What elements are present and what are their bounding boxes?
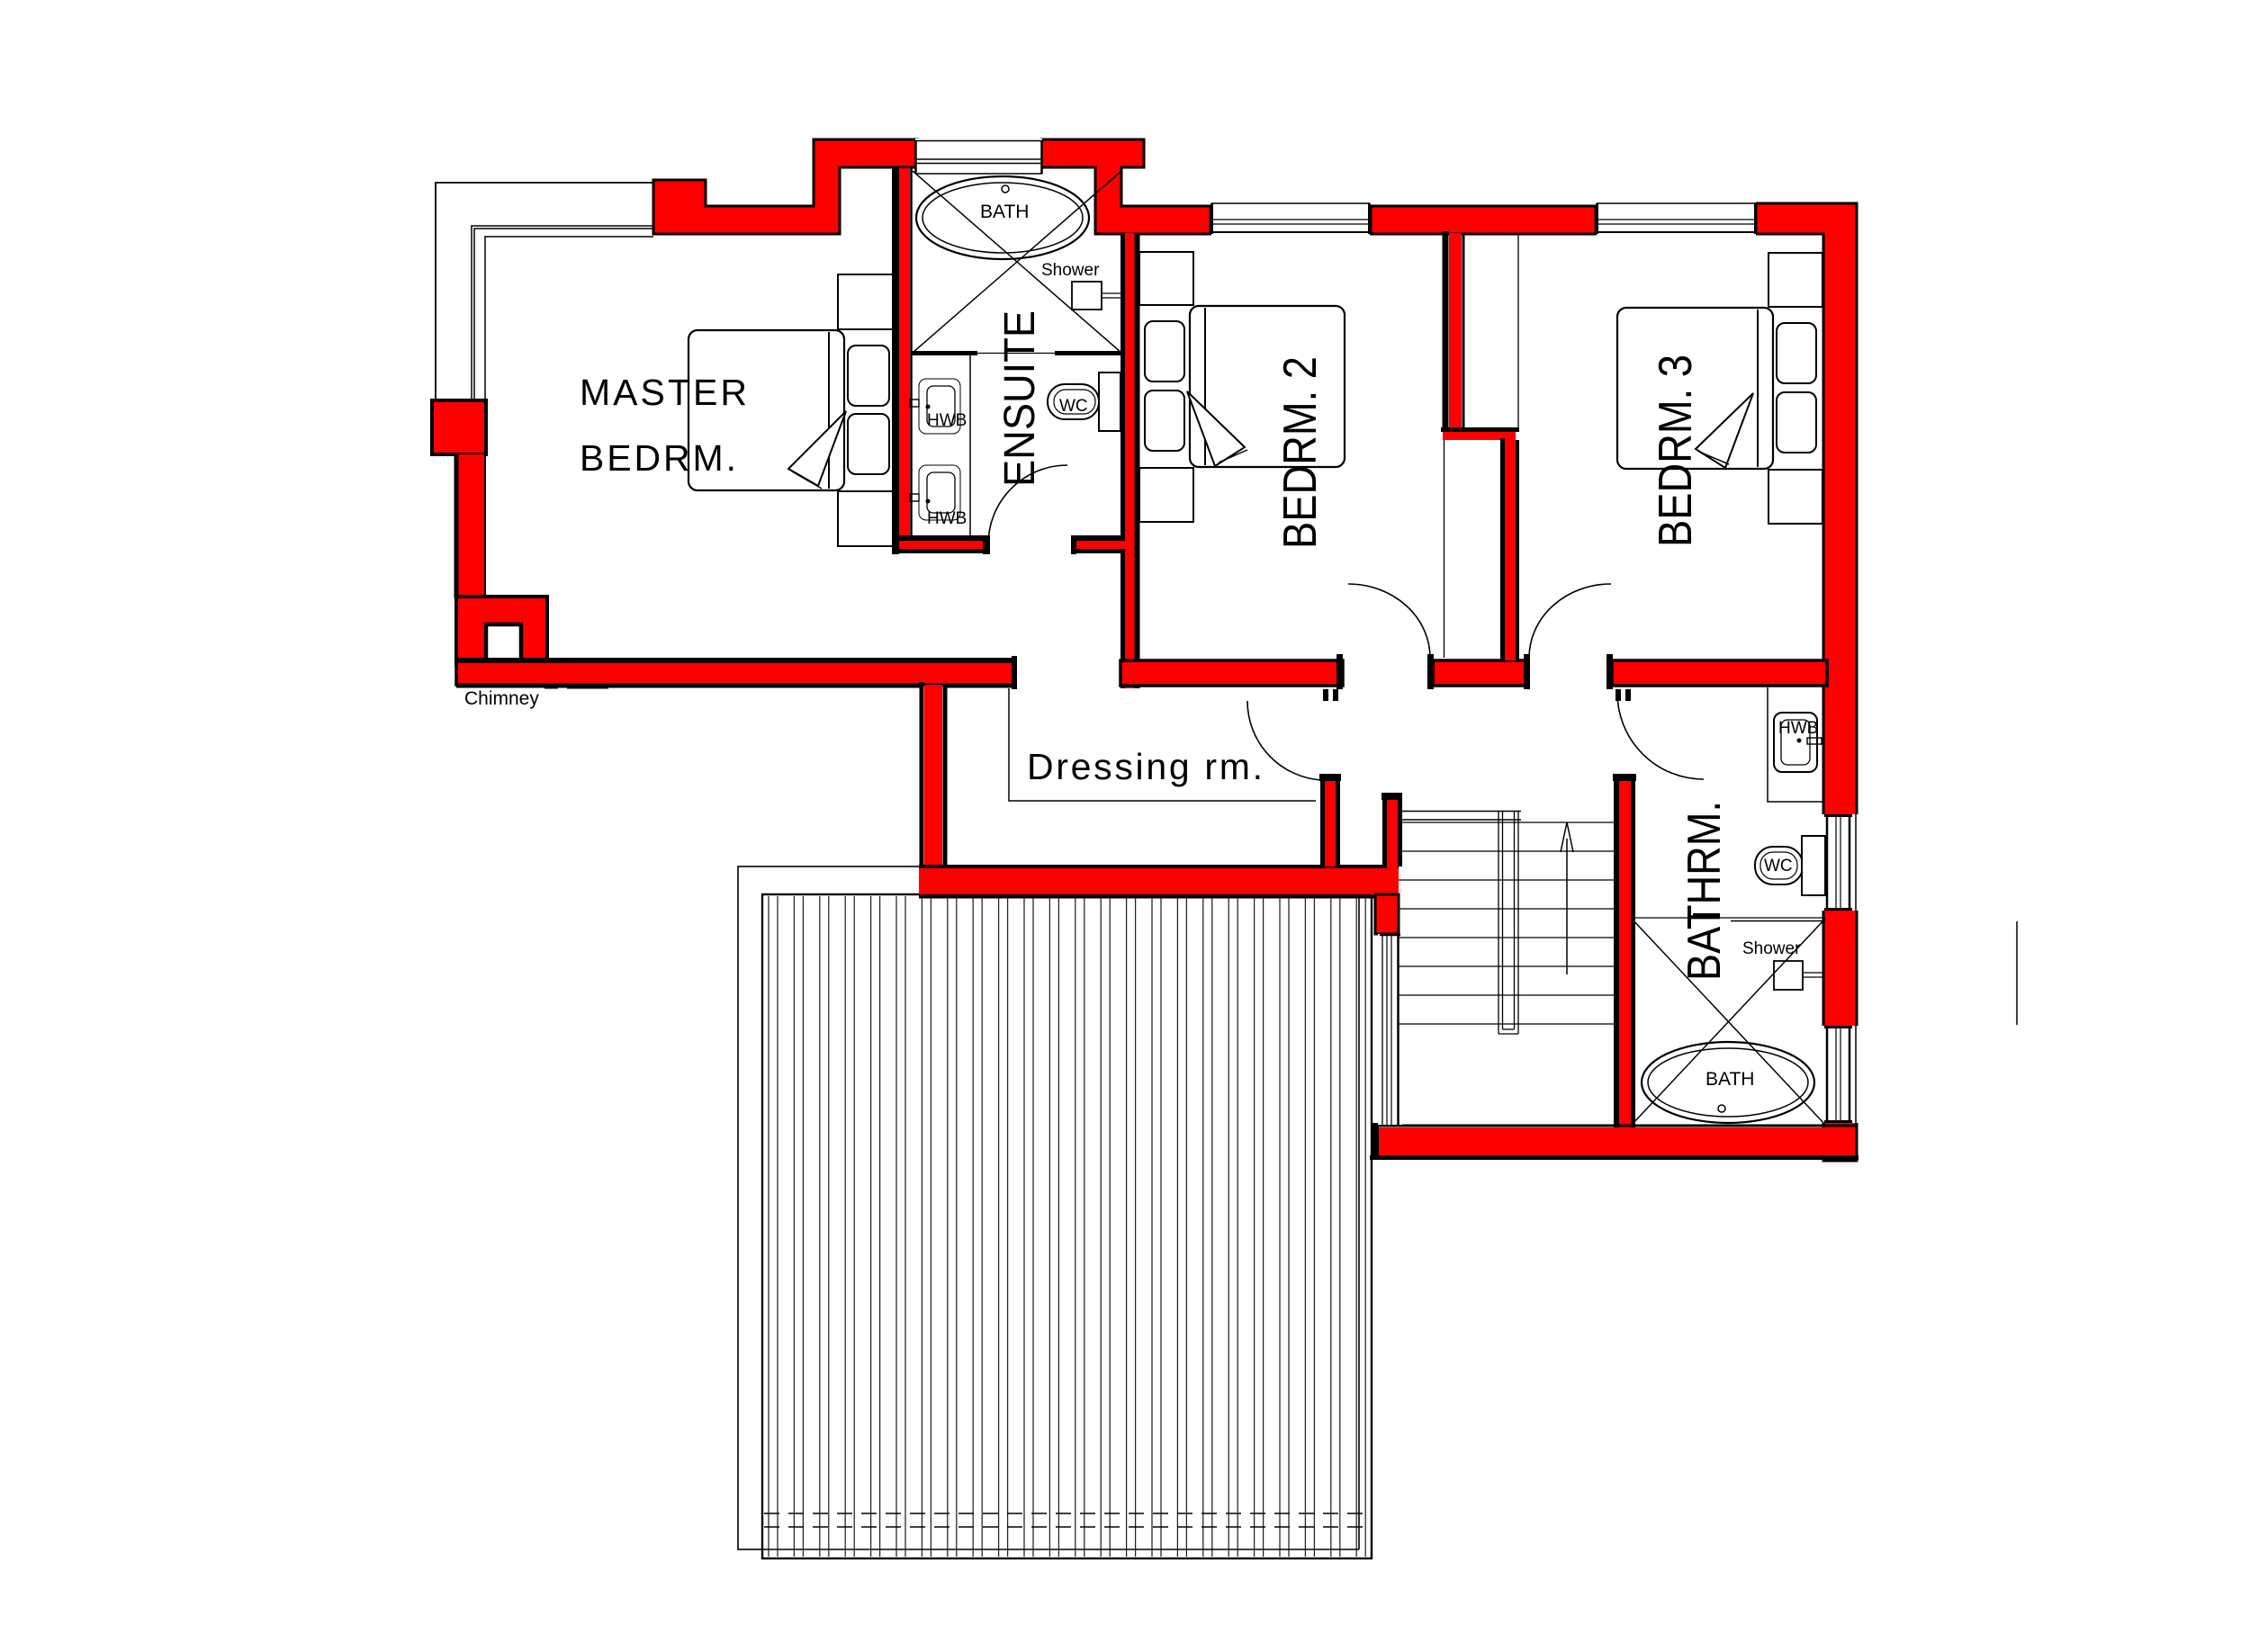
svg-text:BEDRM.: BEDRM.	[580, 437, 736, 479]
svg-text:Chimney: Chimney	[464, 688, 539, 709]
svg-text:BEDRM. 2: BEDRM. 2	[1274, 356, 1327, 549]
svg-text:WC: WC	[1059, 397, 1088, 416]
svg-text:HWB: HWB	[927, 411, 967, 430]
svg-text:Shower: Shower	[1041, 261, 1100, 280]
svg-text:Shower: Shower	[1742, 939, 1801, 958]
svg-text:MASTER: MASTER	[580, 372, 747, 413]
svg-text:BATH: BATH	[980, 202, 1029, 222]
svg-text:HWB: HWB	[927, 509, 967, 528]
svg-text:HWB: HWB	[1778, 719, 1818, 738]
svg-text:WC: WC	[1764, 857, 1793, 875]
svg-text:ENSUITE: ENSUITE	[996, 310, 1044, 487]
svg-text:BATH: BATH	[1705, 1069, 1754, 1090]
svg-text:BATHRM.: BATHRM.	[1678, 801, 1731, 981]
svg-text:BEDRM. 3: BEDRM. 3	[1650, 355, 1702, 547]
